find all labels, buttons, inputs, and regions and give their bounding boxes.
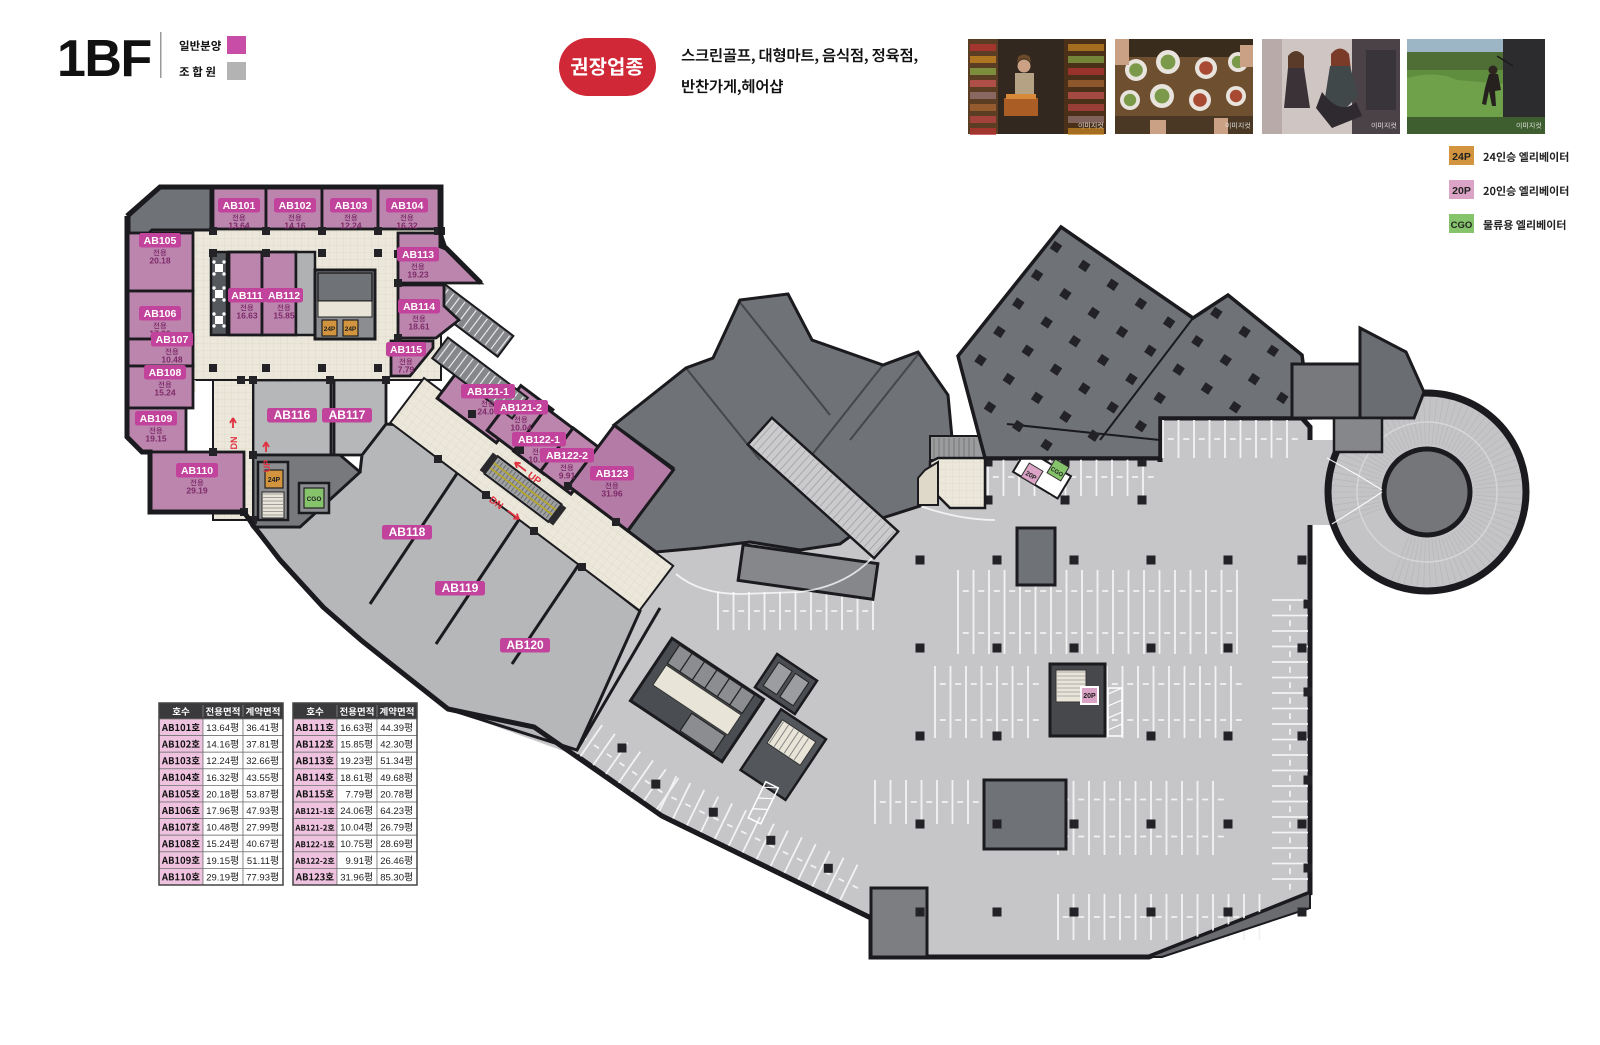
svg-text:32.66: 32.66 xyxy=(246,756,270,767)
svg-text:AB122-2: AB122-2 xyxy=(546,450,588,462)
svg-text:AB120: AB120 xyxy=(506,638,544,652)
svg-text:44.39: 44.39 xyxy=(380,723,404,734)
svg-text:43.55: 43.55 xyxy=(246,773,270,784)
svg-text:7.79: 7.79 xyxy=(346,789,365,800)
svg-text:CGO: CGO xyxy=(1451,220,1473,231)
svg-text:AB106: AB106 xyxy=(144,308,177,320)
svg-text:37.81: 37.81 xyxy=(246,740,270,751)
svg-text:13.64: 13.64 xyxy=(206,723,230,734)
svg-text:AB113: AB113 xyxy=(402,249,434,261)
svg-text:10.48: 10.48 xyxy=(161,355,183,365)
svg-text:24P: 24P xyxy=(345,326,357,333)
svg-text:AB101: AB101 xyxy=(223,200,256,212)
svg-text:19.15: 19.15 xyxy=(206,856,230,867)
svg-text:UP: UP xyxy=(262,460,272,473)
svg-text:7.79: 7.79 xyxy=(398,365,415,375)
svg-text:AB114: AB114 xyxy=(403,301,435,313)
svg-text:20.18: 20.18 xyxy=(206,789,230,800)
svg-text:14.16: 14.16 xyxy=(206,740,230,751)
svg-text:64.23: 64.23 xyxy=(380,806,404,817)
svg-text:42.30: 42.30 xyxy=(380,740,404,751)
svg-text:20.78: 20.78 xyxy=(380,789,404,800)
svg-text:15.24: 15.24 xyxy=(206,839,230,850)
svg-text:AB103: AB103 xyxy=(335,200,368,212)
svg-text:19.23: 19.23 xyxy=(407,270,429,280)
svg-text:51.11: 51.11 xyxy=(247,856,270,867)
svg-text:17.96: 17.96 xyxy=(206,806,230,817)
svg-text:19.15: 19.15 xyxy=(145,434,167,444)
svg-text:18.61: 18.61 xyxy=(340,773,364,784)
svg-text:29.19: 29.19 xyxy=(186,486,208,496)
svg-text:49.68: 49.68 xyxy=(380,773,404,784)
svg-text:10.04: 10.04 xyxy=(340,823,364,834)
svg-text:14.16: 14.16 xyxy=(284,221,306,231)
svg-text:12.24: 12.24 xyxy=(206,756,230,767)
svg-text:1BF: 1BF xyxy=(57,30,151,88)
svg-text:AB115: AB115 xyxy=(390,344,422,356)
svg-text:AB118: AB118 xyxy=(389,525,426,539)
svg-text:CGO: CGO xyxy=(307,496,322,503)
svg-text:24P: 24P xyxy=(1452,151,1471,163)
svg-text:18.61: 18.61 xyxy=(408,322,430,332)
svg-text:AB116: AB116 xyxy=(274,408,311,422)
svg-text:15.85: 15.85 xyxy=(340,740,364,751)
svg-text:10.04: 10.04 xyxy=(510,423,532,433)
svg-text:AB121-1: AB121-1 xyxy=(467,386,509,398)
svg-text:16.32: 16.32 xyxy=(396,221,418,231)
svg-text:20P: 20P xyxy=(1452,185,1471,197)
svg-text:AB111: AB111 xyxy=(231,290,263,302)
svg-text:15.85: 15.85 xyxy=(273,311,295,321)
svg-text:47.93: 47.93 xyxy=(246,806,270,817)
svg-text:15.24: 15.24 xyxy=(154,388,176,398)
svg-text:9.91: 9.91 xyxy=(346,856,365,867)
svg-text:10.48: 10.48 xyxy=(206,823,230,834)
svg-text:27.99: 27.99 xyxy=(246,823,270,834)
svg-text:31.96: 31.96 xyxy=(601,489,623,499)
svg-text:AB104: AB104 xyxy=(391,200,424,212)
svg-text:AB109: AB109 xyxy=(140,413,173,425)
svg-text:AB122-1: AB122-1 xyxy=(518,434,560,446)
svg-text:13.64: 13.64 xyxy=(228,221,250,231)
svg-text:20.18: 20.18 xyxy=(149,256,171,266)
svg-text:AB123: AB123 xyxy=(596,468,629,480)
svg-text:28.69: 28.69 xyxy=(380,839,404,850)
svg-text:31.96: 31.96 xyxy=(340,872,364,883)
svg-text:AB112: AB112 xyxy=(268,290,300,302)
svg-text:40.67: 40.67 xyxy=(246,839,270,850)
svg-text:85.30: 85.30 xyxy=(380,872,404,883)
svg-text:AB119: AB119 xyxy=(442,581,479,595)
svg-text:16.63: 16.63 xyxy=(236,311,258,321)
svg-text:36.41: 36.41 xyxy=(246,723,270,734)
svg-text:9.91: 9.91 xyxy=(559,471,576,481)
svg-text:AB108: AB108 xyxy=(149,367,182,379)
svg-text:24.06: 24.06 xyxy=(340,806,364,817)
svg-text:53.87: 53.87 xyxy=(246,789,270,800)
svg-text:77.93: 77.93 xyxy=(246,872,270,883)
svg-text:12.24: 12.24 xyxy=(340,221,362,231)
svg-text:24P: 24P xyxy=(268,477,281,484)
svg-text:AB107: AB107 xyxy=(156,334,189,346)
svg-text:29.19: 29.19 xyxy=(206,872,230,883)
svg-text:AB105: AB105 xyxy=(144,235,177,247)
svg-text:24P: 24P xyxy=(324,326,336,333)
svg-text:AB121-2: AB121-2 xyxy=(500,402,542,414)
svg-text:DN: DN xyxy=(229,437,239,450)
svg-text:26.79: 26.79 xyxy=(380,823,404,834)
svg-text:16.32: 16.32 xyxy=(206,773,230,784)
svg-text:51.34: 51.34 xyxy=(380,756,404,767)
svg-text:26.46: 26.46 xyxy=(380,856,404,867)
svg-text:16.63: 16.63 xyxy=(340,723,364,734)
svg-text:20P: 20P xyxy=(1083,693,1096,700)
svg-text:AB117: AB117 xyxy=(329,408,366,422)
svg-text:10.75: 10.75 xyxy=(340,839,364,850)
svg-text:19.23: 19.23 xyxy=(340,756,364,767)
svg-text:AB102: AB102 xyxy=(279,200,312,212)
svg-text:AB110: AB110 xyxy=(181,465,213,477)
